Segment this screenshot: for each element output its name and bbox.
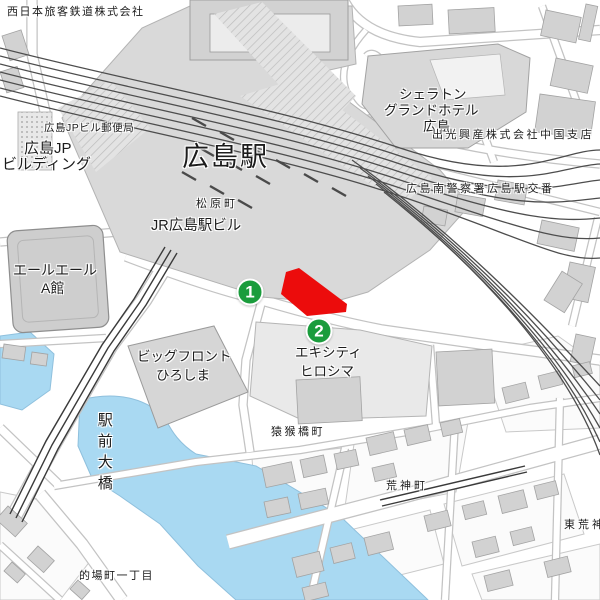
map-label-big-front-line1: ビッグフロント: [137, 350, 232, 364]
map-label-higashi-kojin-machi: 東荒神町: [564, 520, 600, 532]
map-canvas[interactable]: 西日本旅客鉄道株式会社広島JPビル郵便局広島JPビルディング広島駅松原町JR広島…: [0, 0, 600, 600]
map-label-ekimae-ohashi-bridge: 駅前大橋: [96, 412, 112, 496]
map-label-ekicity-line2: ヒロシマ: [300, 365, 354, 379]
map-label-ekicity-line1: エキシティ: [295, 346, 362, 360]
map-marker-2[interactable]: 2: [306, 318, 333, 345]
map-label-hiroshima-station: 広島駅: [182, 143, 269, 171]
map-label-matsubara-cho: 松原町: [196, 199, 238, 211]
map-label-big-front-line2: ひろしま: [156, 369, 210, 383]
map-label-enkobashi-cho: 猿猴橋町: [271, 427, 325, 439]
map-label-police-box: 広島南警察署広島駅交番: [406, 184, 555, 196]
map-label-idemitsu-chugoku-branch: 出光興産株式会社中国支店: [432, 130, 594, 142]
map-marker-1[interactable]: 1: [237, 279, 264, 306]
map-label-sheraton-line1: シェラトン: [399, 88, 467, 102]
map-label-kojin-machi: 荒神町: [386, 481, 428, 493]
map-label-jr-hiroshima-station-bldg: JR広島駅ビル: [151, 219, 241, 234]
map-label-jp-post-office: 広島JPビル郵便局: [44, 123, 134, 134]
map-label-jp-building-line1: 広島JP: [24, 141, 72, 157]
map-graphics: [0, 0, 600, 600]
map-label-yale-yale-line1: エールエール: [13, 263, 97, 278]
map-label-sheraton-line2: グランドホテル: [384, 104, 479, 118]
map-label-jp-building-line2: ビルディング: [2, 157, 91, 173]
map-label-west-jr-company: 西日本旅客鉄道株式会社: [7, 7, 145, 19]
map-label-yale-yale-line2: A館: [41, 281, 64, 296]
map-label-matoba-cho-1: 的場町一丁目: [79, 571, 154, 583]
yale-yale-building: [7, 225, 110, 333]
